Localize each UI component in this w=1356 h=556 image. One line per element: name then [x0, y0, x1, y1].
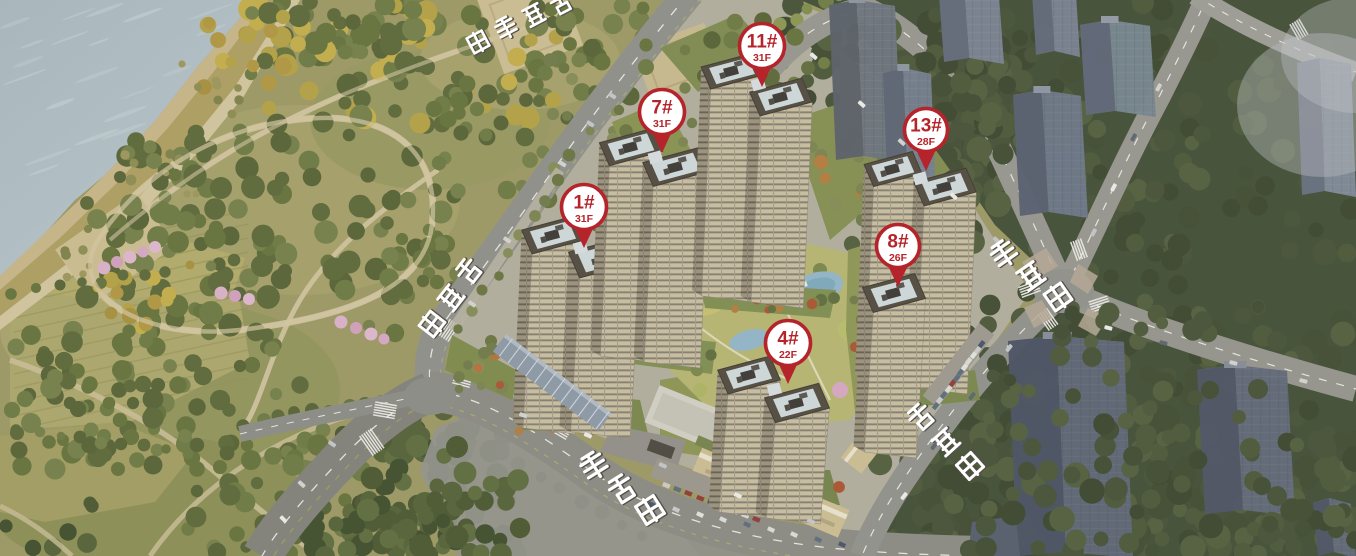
svg-text:22F: 22F: [779, 349, 798, 361]
svg-text:1#: 1#: [573, 193, 595, 214]
svg-text:4#: 4#: [777, 329, 799, 350]
svg-text:13#: 13#: [910, 116, 942, 137]
svg-text:11#: 11#: [747, 32, 778, 53]
svg-text:7#: 7#: [651, 98, 673, 119]
svg-text:28F: 28F: [917, 136, 936, 148]
svg-text:31F: 31F: [575, 213, 594, 225]
svg-text:31F: 31F: [753, 52, 772, 64]
svg-text:26F: 26F: [889, 252, 908, 264]
svg-text:8#: 8#: [887, 232, 909, 253]
svg-text:31F: 31F: [653, 118, 672, 130]
